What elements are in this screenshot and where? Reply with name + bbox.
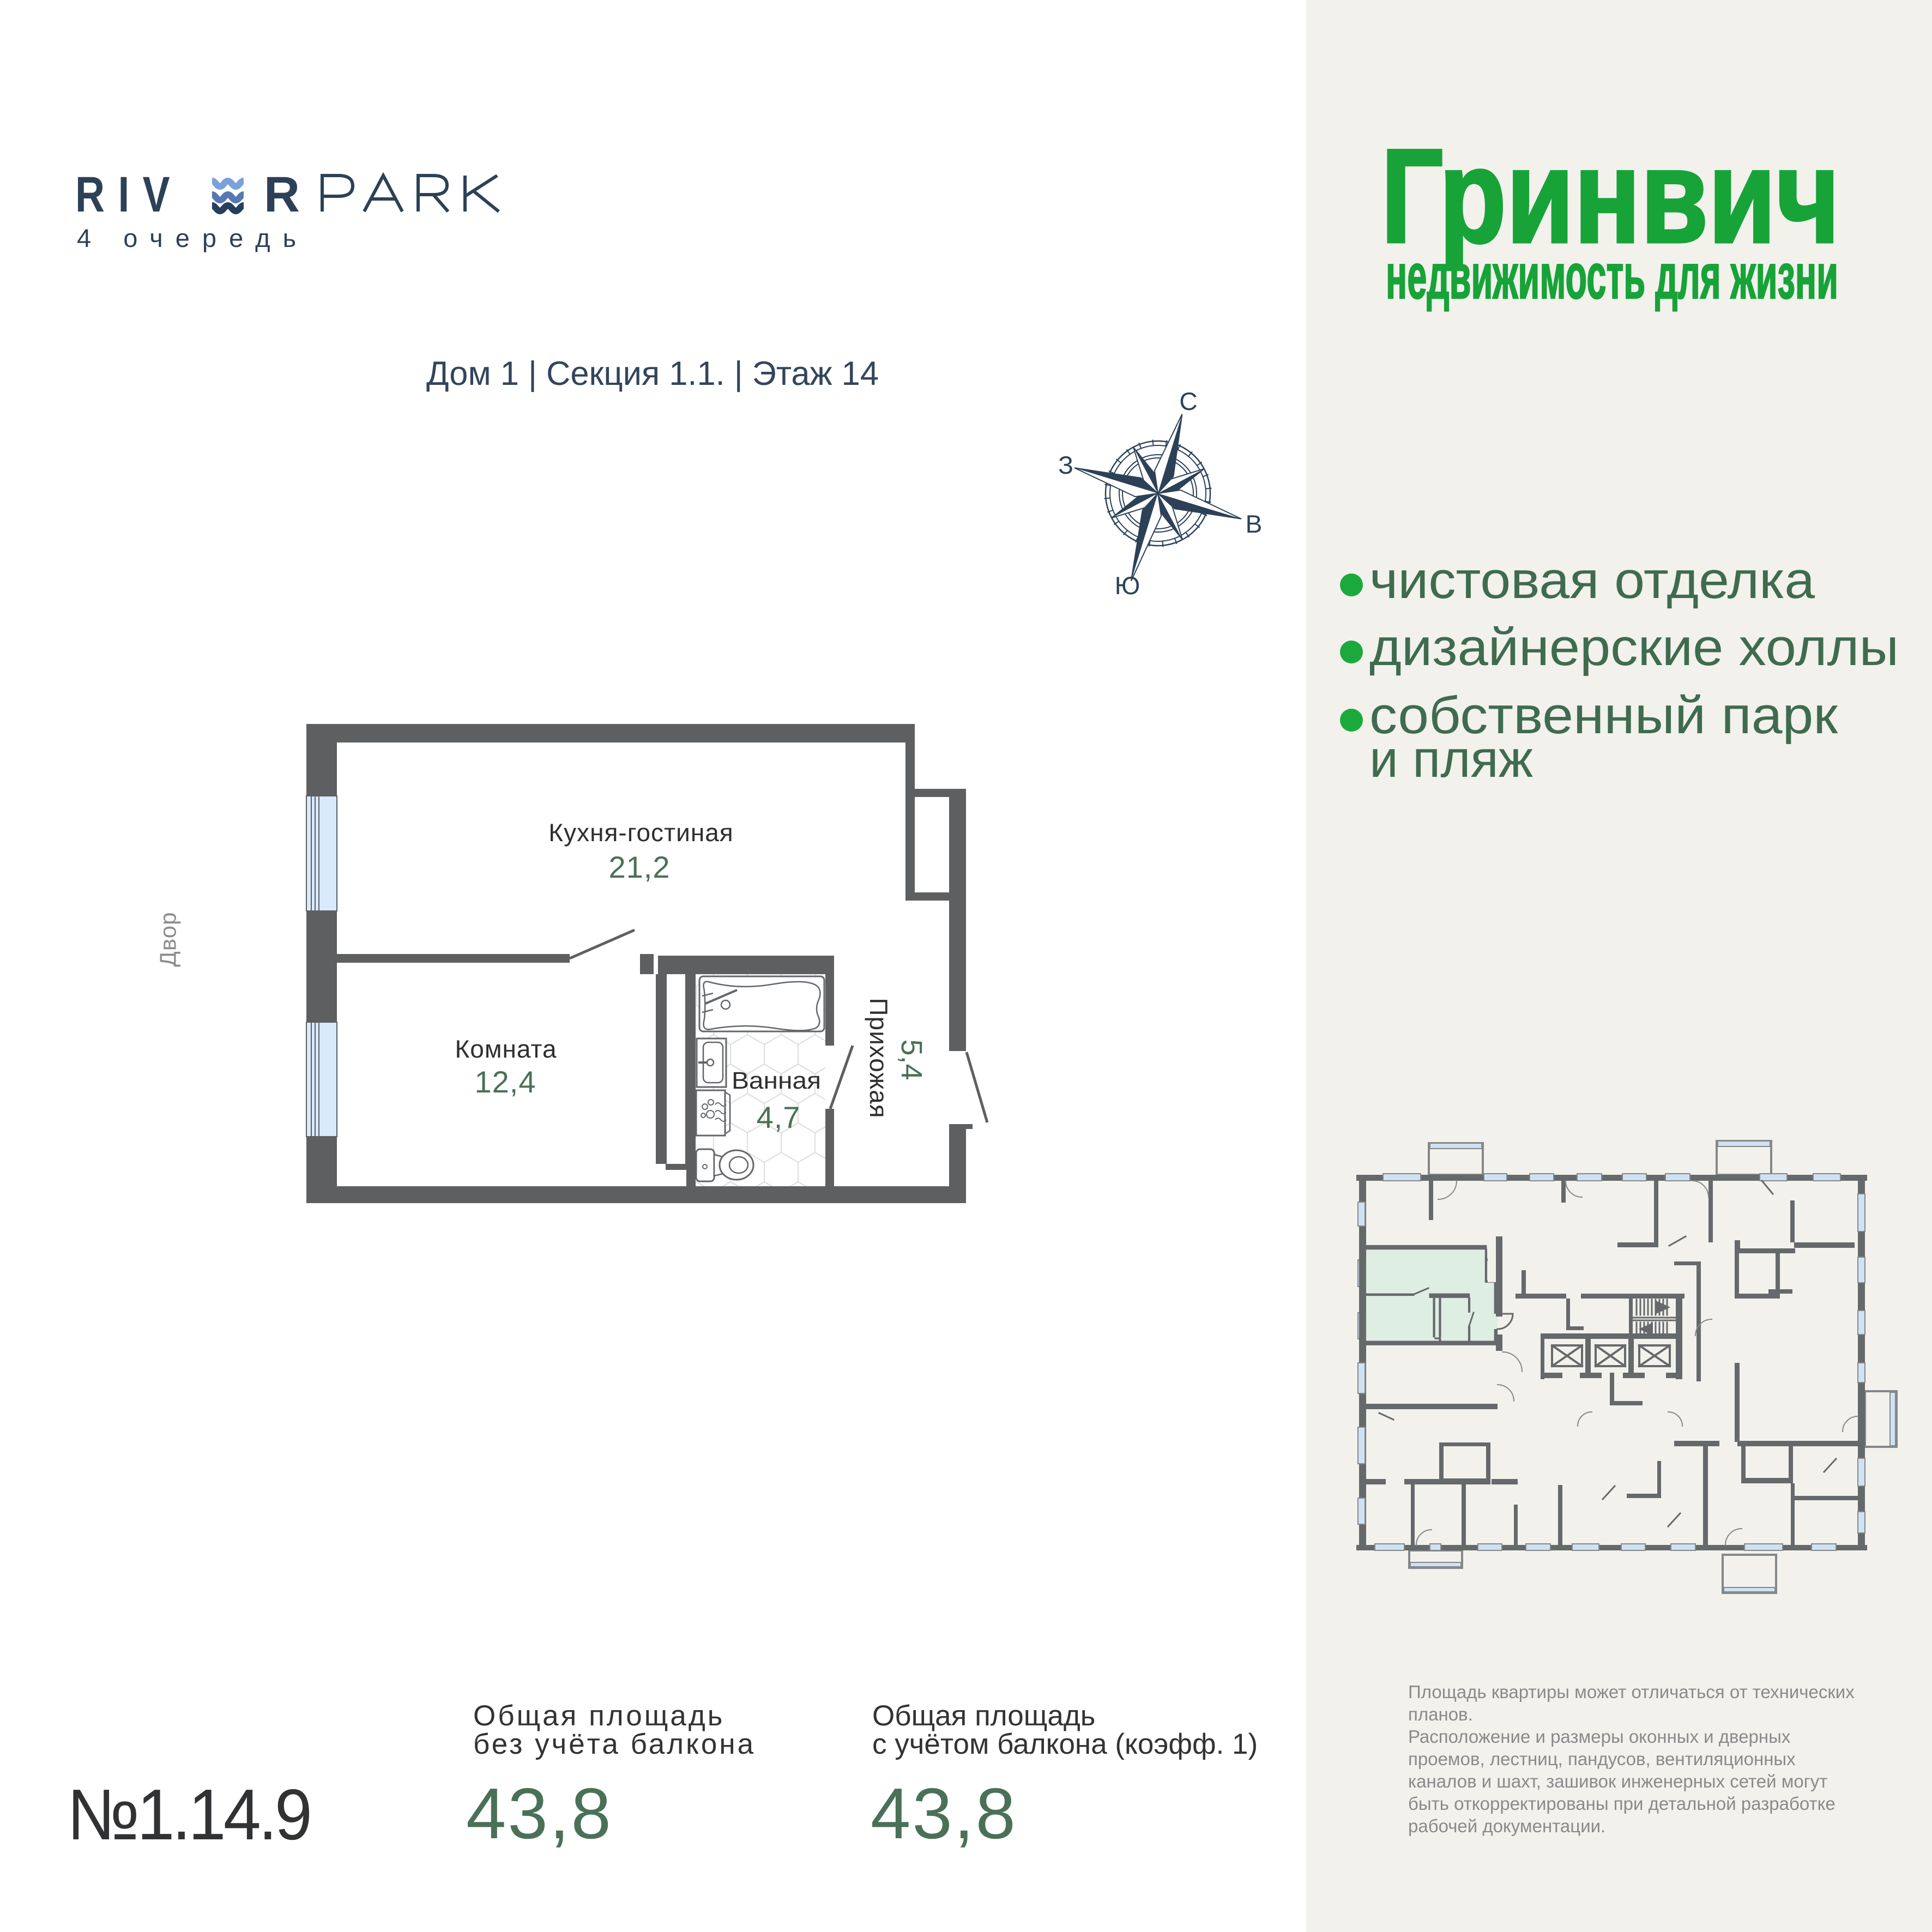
svg-text:12,4: 12,4 <box>475 1065 536 1099</box>
svg-text:Комната: Комната <box>455 1035 557 1063</box>
svg-text:С: С <box>1179 387 1197 415</box>
svg-text:4,7: 4,7 <box>757 1100 801 1134</box>
svg-text:Дом 1 | Секция 1.1. | Этаж 14: Дом 1 | Секция 1.1. | Этаж 14 <box>426 355 879 393</box>
svg-text:21,2: 21,2 <box>609 850 671 884</box>
svg-text:R: R <box>264 167 300 222</box>
svg-text:4 очередь: 4 очередь <box>77 224 309 252</box>
svg-text:RIV: RIV <box>75 167 183 222</box>
svg-text:недвижимость для жизни: недвижимость для жизни <box>1386 240 1838 312</box>
svg-text:З: З <box>1058 451 1073 479</box>
svg-text:и пляж: и пляж <box>1369 730 1533 788</box>
svg-text:5,4: 5,4 <box>895 1039 928 1080</box>
svg-text:Прихожая: Прихожая <box>865 998 893 1118</box>
svg-text:Ванная: Ванная <box>732 1067 821 1094</box>
svg-text:Кухня-гостиная: Кухня-гостиная <box>548 818 733 847</box>
svg-text:Ю: Ю <box>1115 571 1140 600</box>
svg-text:Двор: Двор <box>155 911 181 967</box>
svg-text:чистовая отделка: чистовая отделка <box>1369 551 1815 609</box>
svg-text:В: В <box>1246 510 1263 538</box>
svg-text:дизайнерские холлы: дизайнерские холлы <box>1369 618 1899 677</box>
